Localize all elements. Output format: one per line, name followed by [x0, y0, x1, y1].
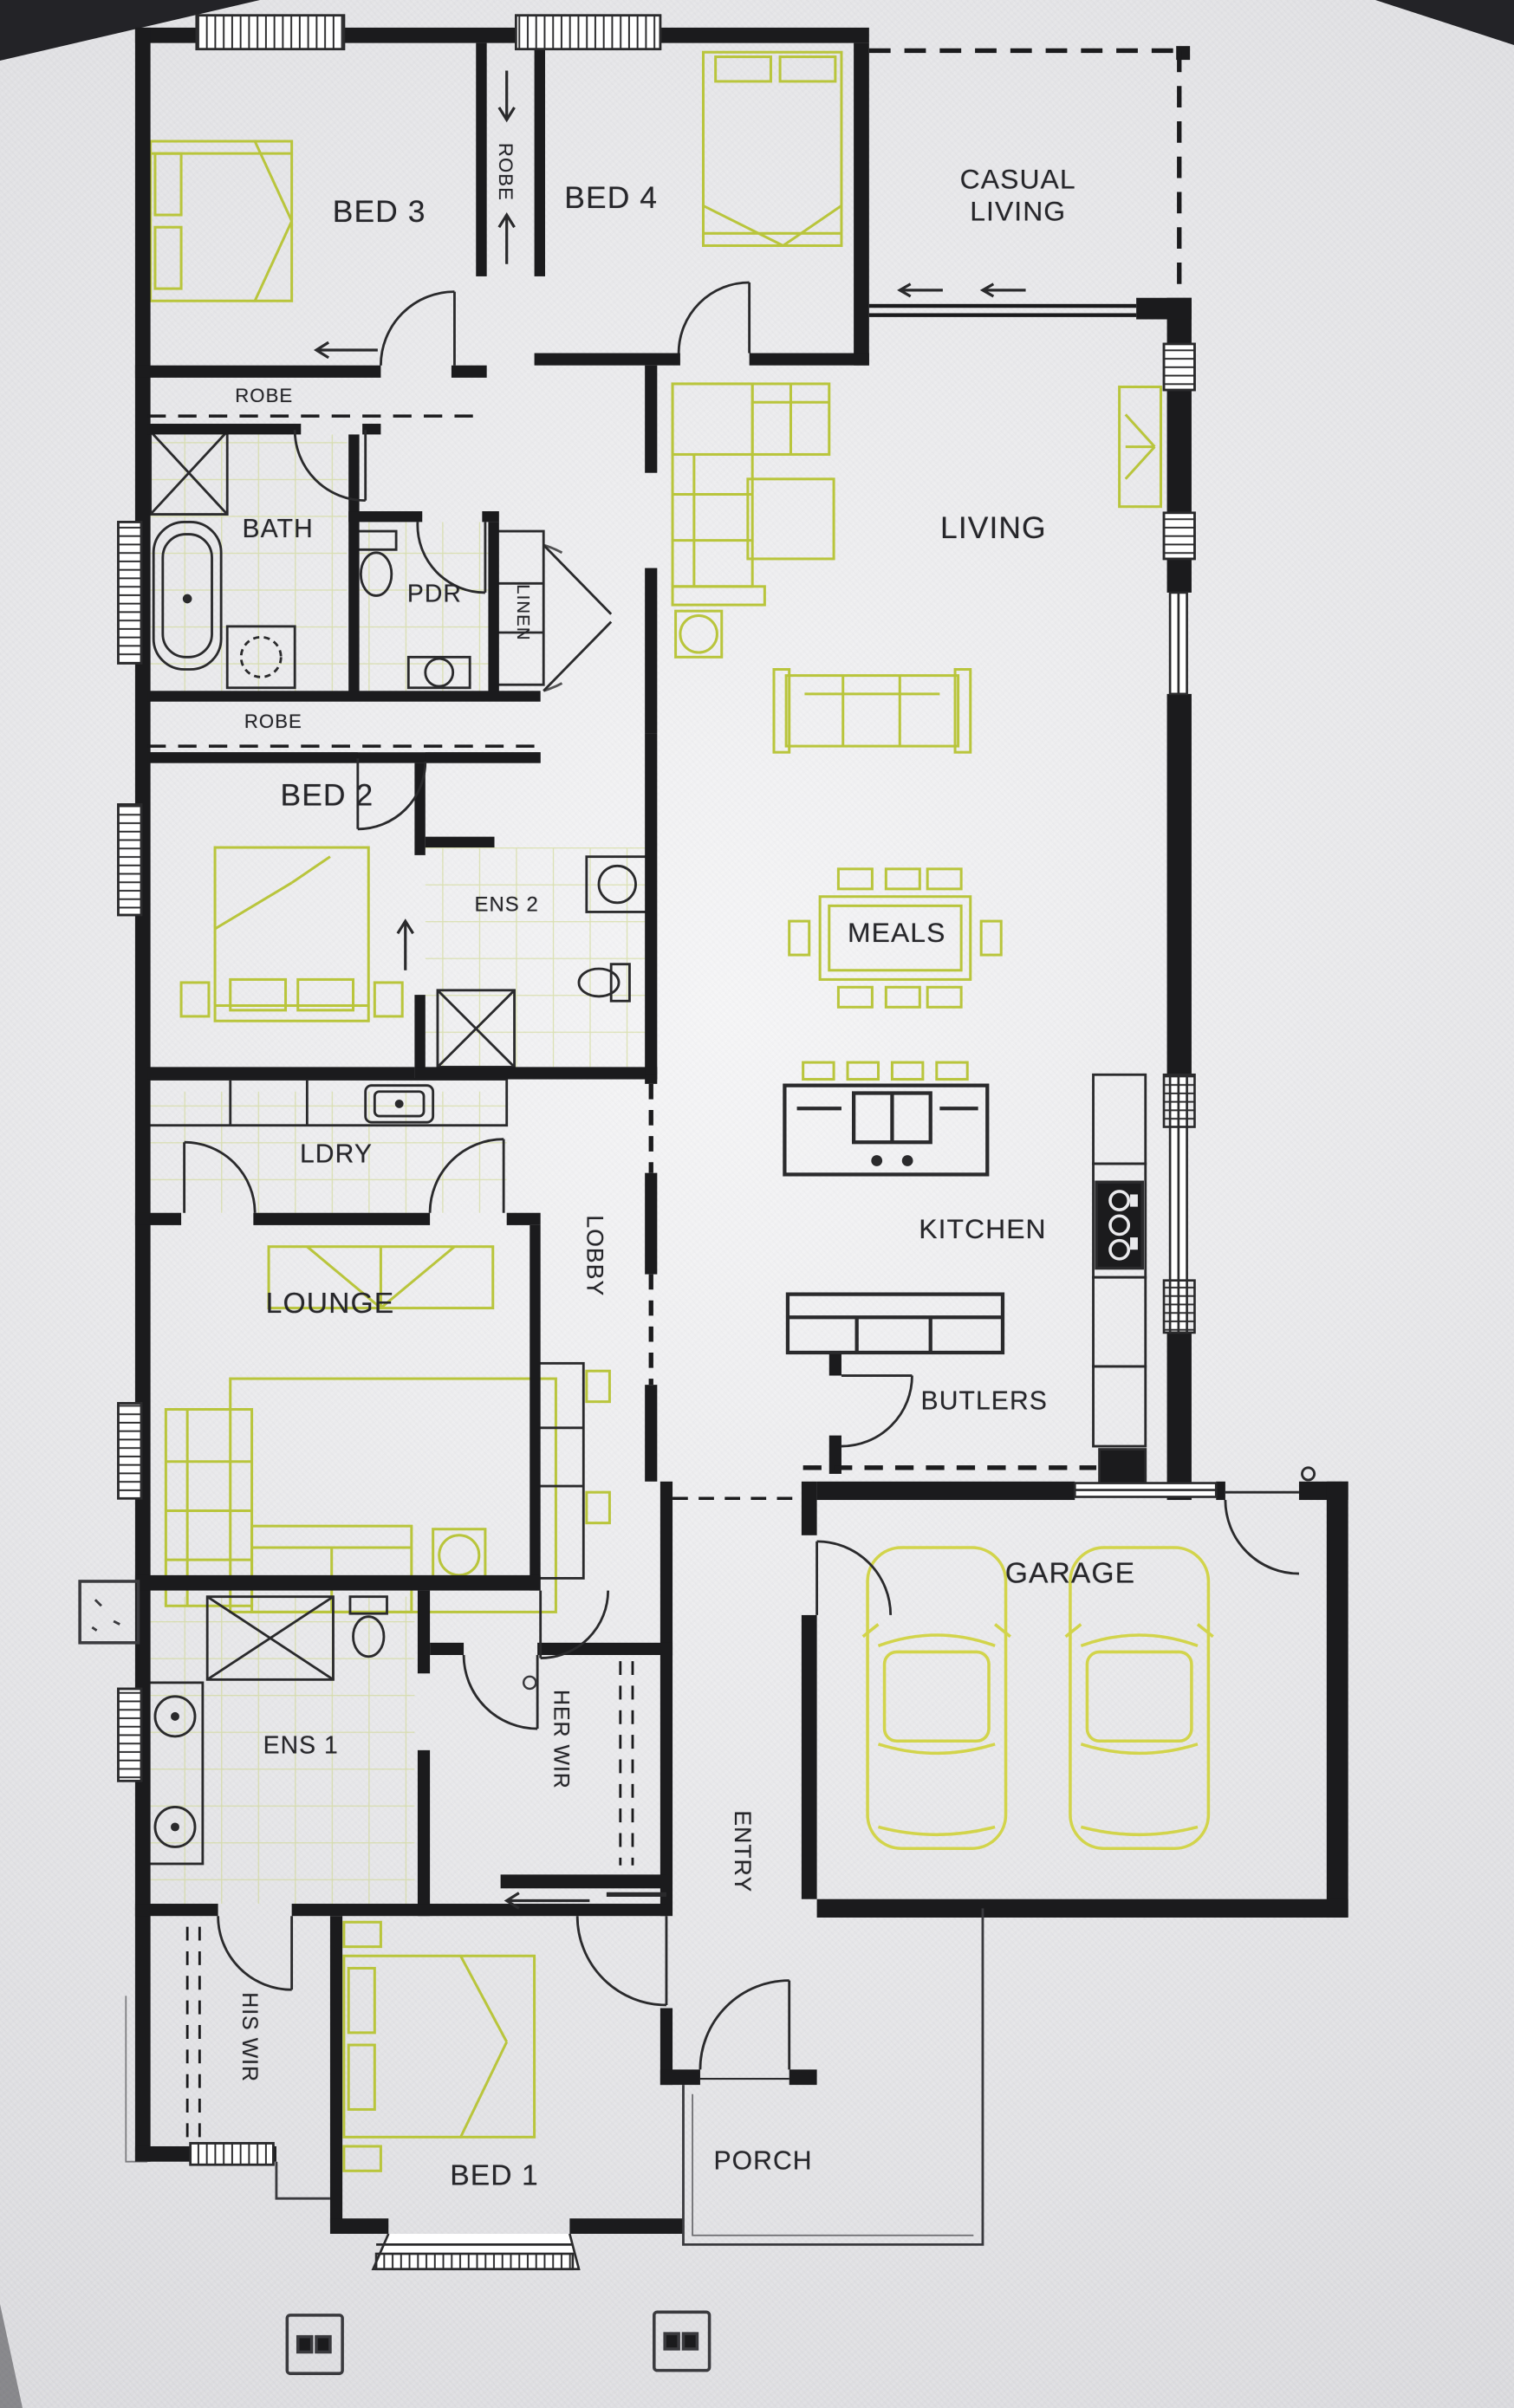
room-labels: BED 3 ROBE BED 4 CASUAL LIVING ROBE BATH… [0, 0, 1514, 2407]
room-label-bed3: BED 3 [333, 196, 426, 231]
room-label-lobby: LOBBY [582, 1215, 608, 1296]
room-label-robe-bed2: ROBE [244, 711, 302, 732]
room-label-porch: PORCH [714, 2146, 813, 2177]
scanned-floor-plan-photo: BED 3 ROBE BED 4 CASUAL LIVING ROBE BATH… [0, 0, 1514, 2408]
room-label-bed2: BED 2 [281, 779, 374, 815]
room-label-living: LIVING [940, 512, 1047, 548]
room-label-butlers: BUTLERS [921, 1386, 1048, 1417]
room-label-pdr: PDR [407, 582, 462, 610]
room-label-ldry: LDRY [300, 1139, 373, 1170]
room-label-kitchen: KITCHEN [919, 1214, 1046, 1246]
room-label-linen: LINEN [513, 584, 531, 640]
room-label-robe-bed3: ROBE [235, 386, 293, 407]
room-label-her-wir: HER WIR [549, 1690, 574, 1789]
room-label-ens2: ENS 2 [474, 892, 538, 916]
room-label-casual-living: CASUAL LIVING [932, 164, 1103, 229]
room-label-bed4: BED 4 [564, 182, 658, 217]
room-label-garage: GARAGE [1005, 1558, 1135, 1592]
room-label-robe-corridor: ROBE [495, 143, 517, 201]
room-label-meals: MEALS [848, 918, 945, 950]
room-label-bath: BATH [243, 515, 314, 545]
room-label-bed1: BED 1 [450, 2160, 539, 2194]
room-label-ens1: ENS 1 [263, 1733, 339, 1761]
room-label-lounge: LOUNGE [266, 1288, 395, 1322]
floor-plan-canvas: BED 3 ROBE BED 4 CASUAL LIVING ROBE BATH… [0, 0, 1514, 2407]
room-label-his-wir: HIS WIR [238, 1992, 263, 2082]
room-label-entry: ENTRY [729, 1810, 755, 1892]
